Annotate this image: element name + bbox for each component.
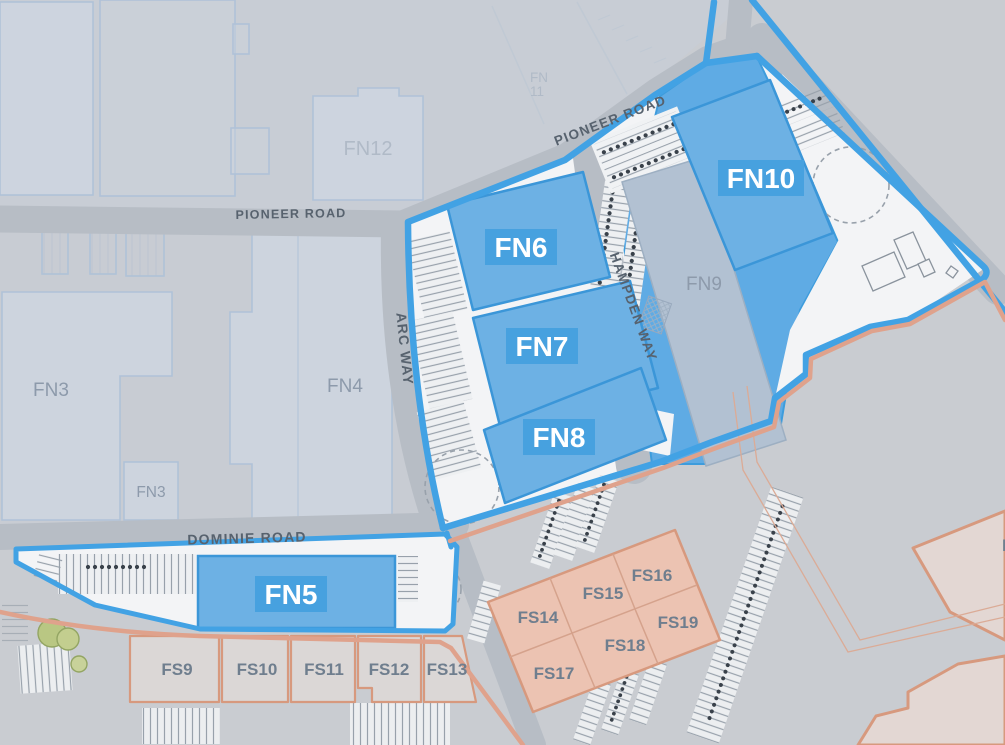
fn7-label: FN7 <box>516 331 569 362</box>
fs15-label: FS15 <box>583 584 624 603</box>
fs11-label: FS11 <box>304 660 344 679</box>
dominie-road-label: DOMINIE ROAD <box>187 528 307 547</box>
fn10-label: FN10 <box>727 163 795 194</box>
fn3-main-label: FN3 <box>33 380 69 401</box>
fs9-label: FS9 <box>161 660 192 679</box>
fs19-label: FS19 <box>658 613 699 632</box>
fs18-label: FS18 <box>605 636 646 655</box>
fn11-label-line1: FN <box>530 70 548 85</box>
fs16-label: FS16 <box>632 566 673 585</box>
fn5-label: FN5 <box>265 579 318 610</box>
fn8-label: FN8 <box>533 422 586 453</box>
fn6-label: FN6 <box>495 232 548 263</box>
fn9-label: FN9 <box>686 274 722 295</box>
fn3-small-label: FN3 <box>136 484 165 501</box>
site-plan-map: FN6 FN7 FN8 FN10 FN5 <box>0 0 1005 745</box>
site-plan-page: FN6 FN7 FN8 FN10 FN5 <box>0 0 1005 745</box>
fs14-label: FS14 <box>518 608 559 627</box>
fs10-label: FS10 <box>237 660 278 679</box>
fn11-label-line2: 11 <box>530 84 544 99</box>
fs13-label: FS13 <box>427 660 468 679</box>
fn4-label: FN4 <box>327 376 363 397</box>
fs17-label: FS17 <box>534 664 575 683</box>
fn12-label: FN12 <box>344 138 393 160</box>
pioneer-road-left-label: PIONEER ROAD <box>235 206 346 222</box>
unit-fn5[interactable]: FN5 <box>198 556 395 628</box>
fs12-label: FS12 <box>369 660 410 679</box>
